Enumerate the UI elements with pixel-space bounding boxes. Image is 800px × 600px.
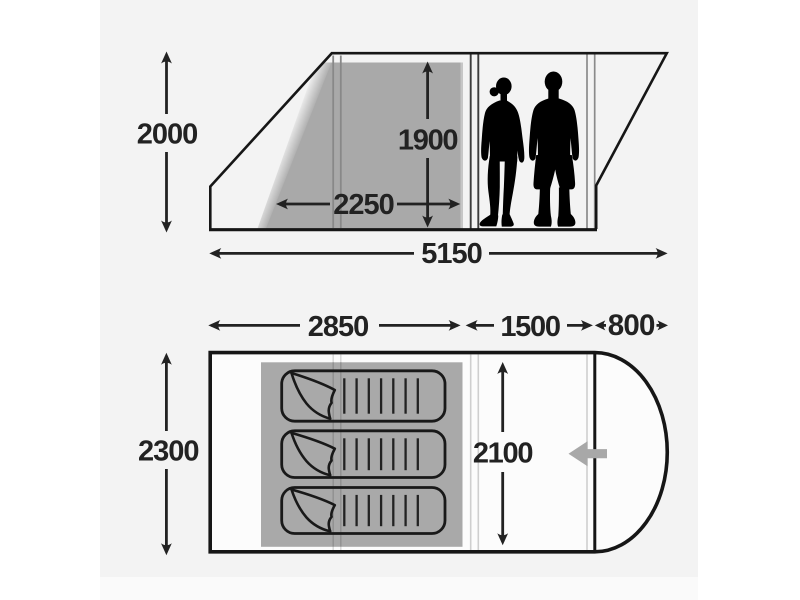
svg-text:2300: 2300 [138,436,199,468]
svg-text:2850: 2850 [308,311,369,343]
svg-text:2250: 2250 [333,189,394,221]
svg-text:2100: 2100 [473,438,532,470]
svg-text:1500: 1500 [500,311,559,343]
svg-text:1900: 1900 [398,125,457,157]
svg-text:2000: 2000 [137,119,198,151]
svg-text:800: 800 [608,309,655,342]
svg-text:5150: 5150 [421,238,482,270]
